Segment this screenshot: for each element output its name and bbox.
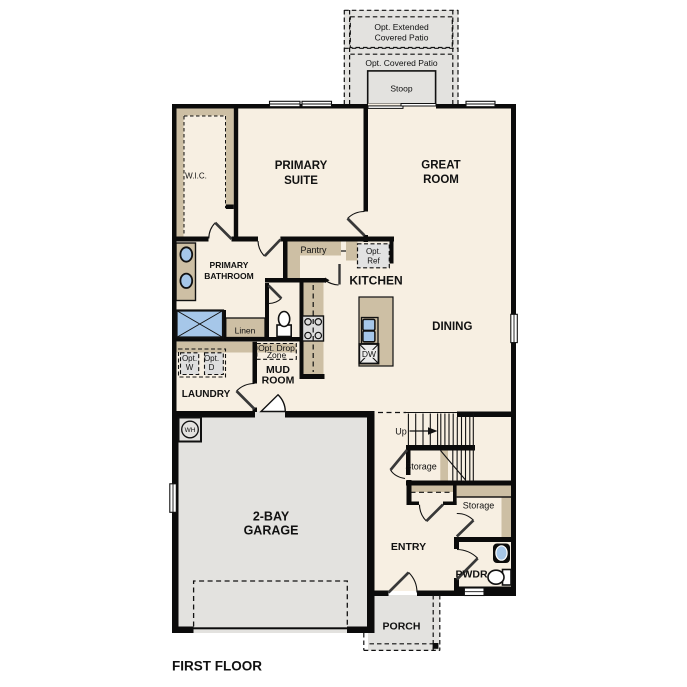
svg-text:Ref: Ref [367, 257, 380, 266]
svg-text:W.I.C.: W.I.C. [185, 172, 207, 181]
svg-text:Opt.: Opt. [366, 247, 381, 256]
svg-text:SUITE: SUITE [284, 175, 318, 187]
svg-text:WH: WH [185, 427, 196, 434]
svg-text:Linen: Linen [235, 326, 256, 336]
svg-text:ENTRY: ENTRY [391, 541, 426, 553]
svg-text:Opt. Covered Patio: Opt. Covered Patio [365, 58, 438, 68]
svg-text:2-BAY: 2-BAY [253, 509, 290, 523]
svg-text:PRIMARY: PRIMARY [210, 260, 249, 270]
svg-text:GREAT: GREAT [421, 160, 460, 172]
svg-text:Covered Patio: Covered Patio [375, 33, 429, 43]
svg-text:BATHROOM: BATHROOM [204, 271, 253, 281]
svg-text:PWDR: PWDR [455, 569, 487, 581]
svg-text:Zone: Zone [267, 350, 287, 360]
svg-text:Stoop: Stoop [390, 84, 412, 94]
svg-text:Opt.: Opt. [182, 354, 197, 363]
svg-text:D: D [209, 363, 215, 372]
svg-text:KITCHEN: KITCHEN [349, 274, 402, 288]
svg-text:PORCH: PORCH [383, 621, 421, 633]
svg-text:DINING: DINING [432, 321, 472, 333]
svg-text:DW: DW [362, 349, 376, 359]
svg-text:Storage: Storage [405, 461, 437, 471]
svg-text:GARAGE: GARAGE [244, 524, 299, 538]
svg-text:Pantry: Pantry [300, 245, 327, 255]
svg-text:Storage: Storage [463, 501, 495, 511]
svg-text:Opt.: Opt. [204, 354, 219, 363]
svg-text:ROOM: ROOM [423, 174, 459, 186]
svg-text:PRIMARY: PRIMARY [275, 160, 328, 172]
svg-text:FIRST FLOOR: FIRST FLOOR [172, 659, 262, 674]
svg-text:ROOM: ROOM [262, 375, 295, 387]
svg-text:Opt. Extended: Opt. Extended [374, 22, 429, 32]
svg-text:LAUNDRY: LAUNDRY [182, 389, 231, 400]
svg-text:Up: Up [395, 427, 407, 437]
svg-text:W: W [186, 363, 194, 372]
